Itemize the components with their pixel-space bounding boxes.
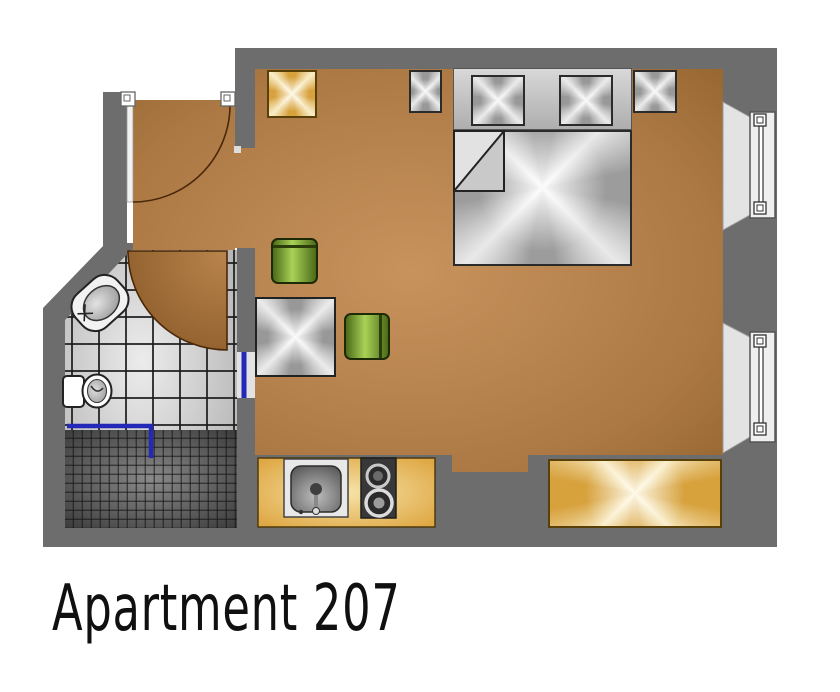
window-upper [723,102,775,230]
door-jamb-left [121,92,135,106]
kitchen-sink [284,459,348,517]
pillow-right [559,75,613,126]
nightstand-right [633,70,677,113]
door-leaf [127,106,133,202]
seat-cushion-yellow [267,70,317,118]
toilet [63,375,112,408]
nightstand-left [409,70,442,113]
green-stool-round [271,238,318,284]
cooktop [361,458,396,518]
wall-end-cap [234,146,241,153]
green-stool-square [344,313,390,360]
bed [453,130,632,266]
side-table [255,297,336,377]
stool-lid-line [379,315,382,358]
floor-plan: Apartment 207 [0,0,840,692]
bed-fold [453,130,507,194]
stool-lid-line [273,245,316,248]
pillow-left [471,75,525,126]
window-glass [759,347,763,428]
plan-title: Apartment 207 [52,572,401,646]
window-glass [759,126,763,206]
kitchen [258,458,435,527]
door-jamb-right [221,92,235,106]
bench-bay [548,459,722,528]
window-lower [723,323,775,453]
bathroom-wall-opening [237,352,255,398]
